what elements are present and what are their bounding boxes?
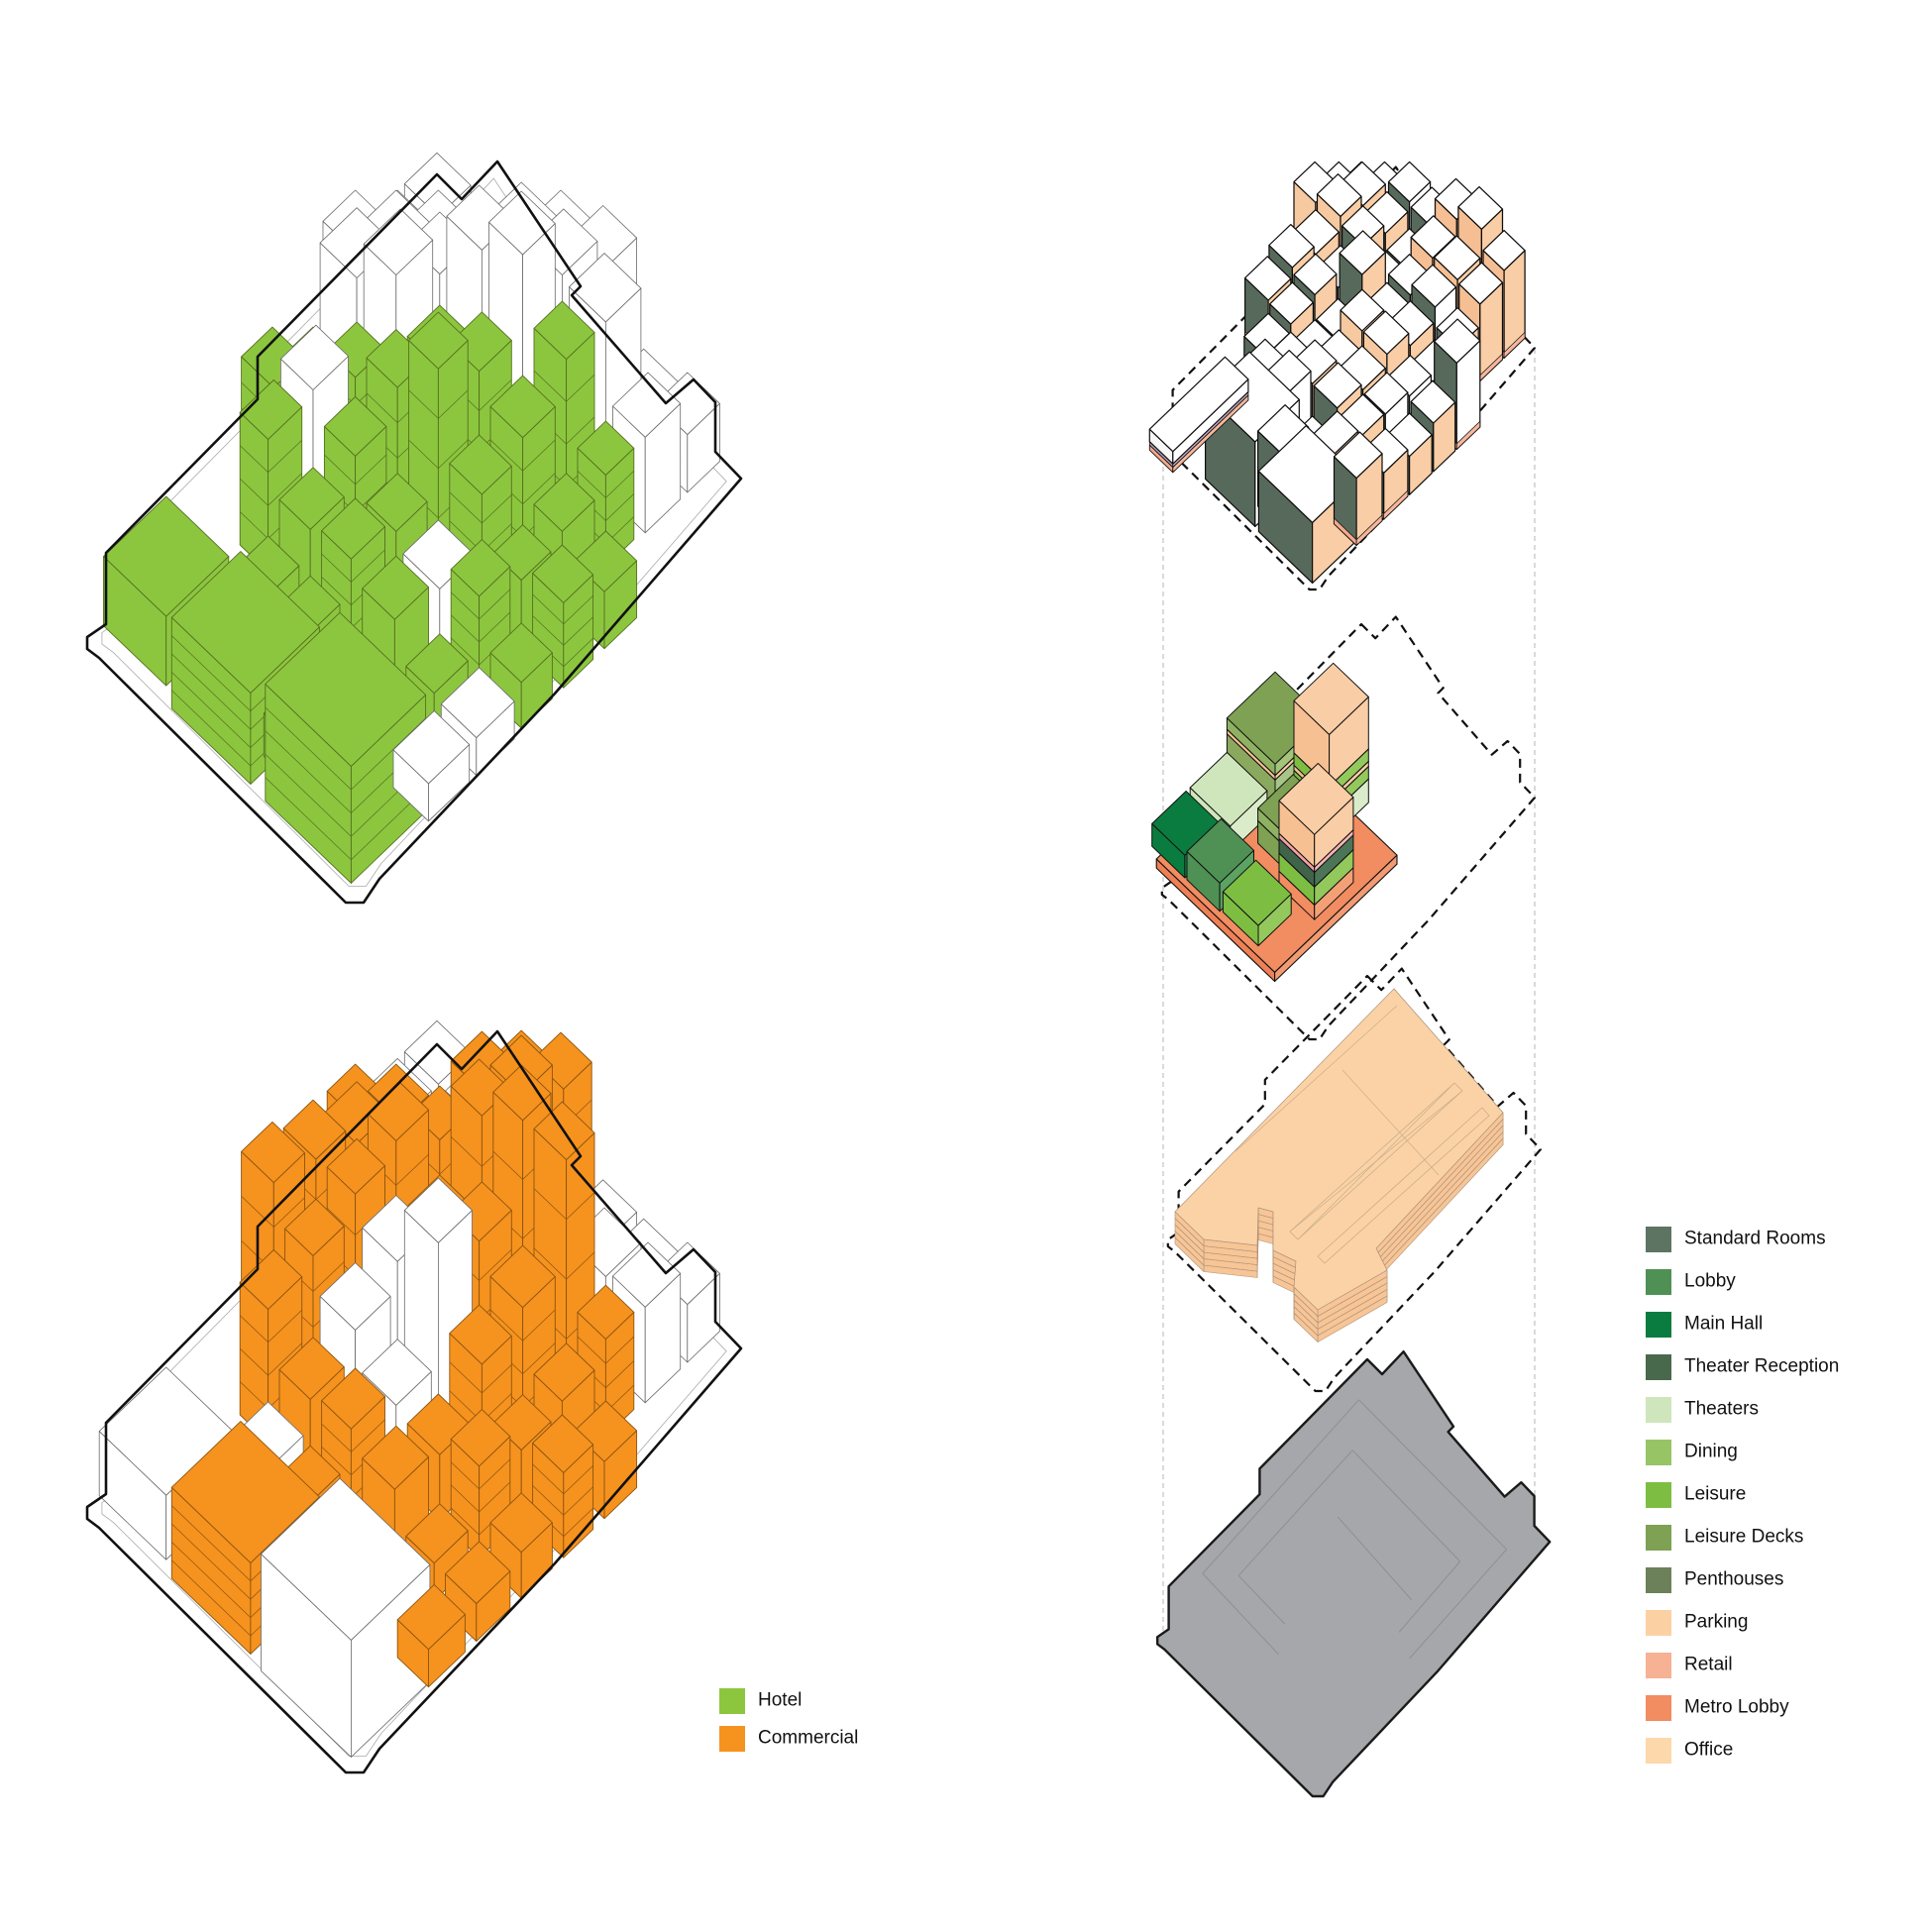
svg-text:Penthouses: Penthouses bbox=[1684, 1569, 1783, 1590]
svg-text:Theater Reception: Theater Reception bbox=[1684, 1356, 1839, 1377]
svg-text:Dining: Dining bbox=[1684, 1442, 1738, 1462]
svg-text:Parking: Parking bbox=[1684, 1612, 1748, 1633]
svg-text:Office: Office bbox=[1684, 1740, 1733, 1761]
svg-text:Leisure: Leisure bbox=[1684, 1484, 1746, 1505]
svg-text:Standard Rooms: Standard Rooms bbox=[1684, 1229, 1826, 1249]
svg-text:Commercial: Commercial bbox=[758, 1728, 858, 1749]
svg-text:Lobby: Lobby bbox=[1684, 1271, 1736, 1292]
svg-text:Metro Lobby: Metro Lobby bbox=[1684, 1697, 1789, 1718]
svg-text:Theaters: Theaters bbox=[1684, 1399, 1759, 1420]
svg-text:Retail: Retail bbox=[1684, 1655, 1733, 1675]
svg-text:Hotel: Hotel bbox=[758, 1690, 802, 1711]
svg-text:Main Hall: Main Hall bbox=[1684, 1314, 1763, 1335]
svg-text:Leisure Decks: Leisure Decks bbox=[1684, 1527, 1803, 1548]
